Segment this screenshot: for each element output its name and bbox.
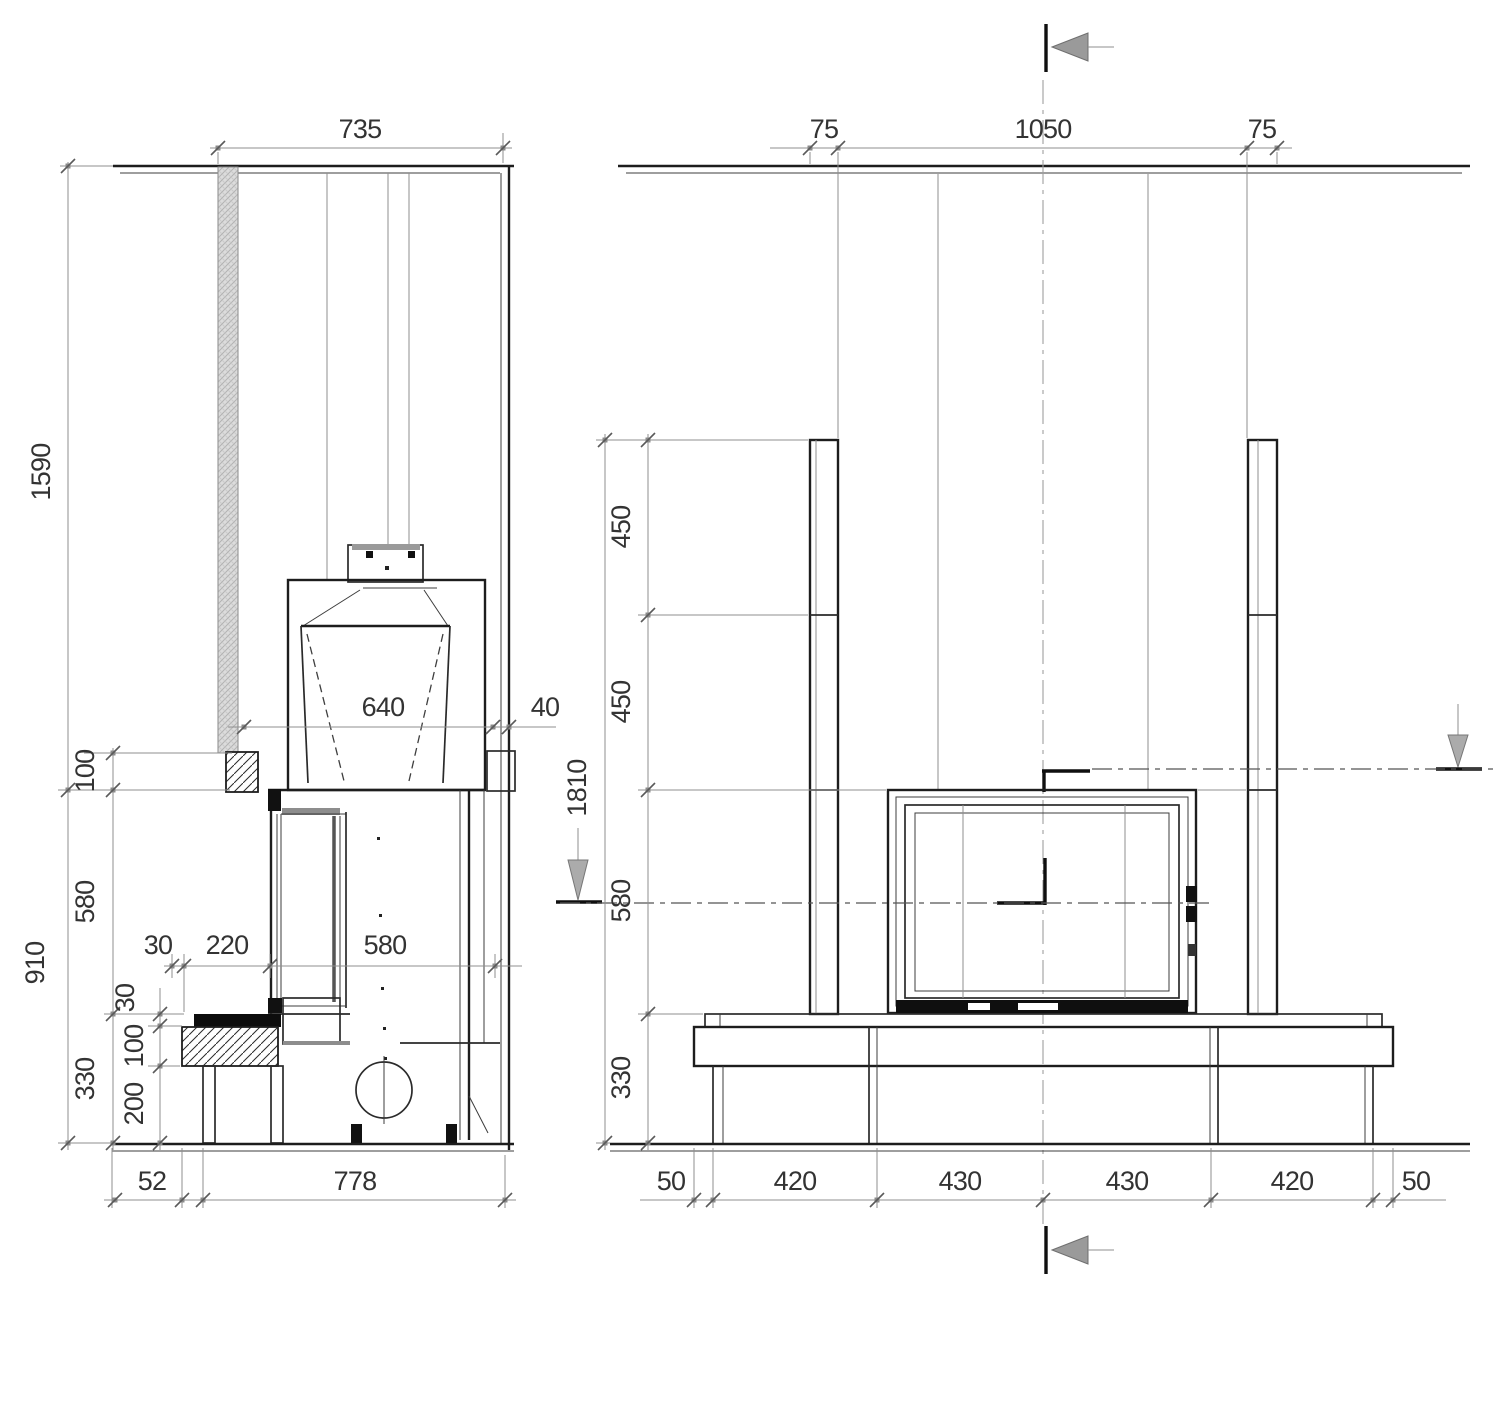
dim-bench-segment-2: 430: [939, 1166, 982, 1196]
dim-bench-depth: 220: [206, 930, 249, 960]
ceiling-line: [60, 166, 514, 173]
dim-bench-block-height: 100: [119, 1025, 149, 1068]
section-arrow-bottom: [1046, 1226, 1114, 1274]
wall-sleeve-block: [226, 752, 258, 792]
bench-section: [182, 1014, 283, 1143]
ash-door: [283, 998, 340, 1044]
dim-bench-segment-3: 430: [1106, 1166, 1149, 1196]
dim-bench-segment-1: 420: [774, 1166, 817, 1196]
dim-base-height: 330: [606, 1057, 636, 1100]
dim-mid-height: 580: [70, 881, 100, 924]
dim-front-gap: 30: [144, 930, 172, 960]
dim-dome-width: 640: [362, 692, 405, 722]
smoke-dome-taper-left: [307, 634, 344, 781]
datum-marker-left: [556, 828, 602, 902]
dim-total-depth: 778: [334, 1166, 377, 1196]
bench-leg-rear: [271, 1066, 283, 1143]
left-column: [810, 440, 838, 1014]
dim-column-upper: 450: [606, 506, 636, 549]
flue-pipe-lines: [327, 173, 409, 580]
dim-total-height: 1810: [562, 760, 592, 817]
facing-wall: [501, 166, 509, 1150]
section-arrow-top: [1046, 24, 1114, 72]
flue-collar: [348, 544, 423, 582]
dim-floor-left: 50: [657, 1166, 685, 1196]
chimney-wall-section: [218, 167, 238, 753]
smoke-chamber-housing: [288, 580, 485, 790]
dim-leg-height: 200: [119, 1083, 149, 1126]
dim-column-lower: 450: [606, 681, 636, 724]
floor-line-left-view: [112, 1144, 514, 1151]
dim-margin-left: 75: [810, 114, 838, 144]
front-view-dimension-lines: [596, 141, 1446, 1208]
dim-bench-segment-4: 420: [1271, 1166, 1314, 1196]
floor-line-front-view: [610, 1144, 1470, 1151]
dim-firebox-height: 580: [606, 880, 636, 923]
dim-wall-height: 1590: [26, 444, 56, 501]
front-elevation-view: 75 1050 75 450 450 1810 580 330 50 420 4…: [556, 24, 1495, 1274]
dim-opening-width: 1050: [1015, 114, 1072, 144]
dim-connector-height: 100: [70, 750, 100, 793]
right-column: [1248, 440, 1277, 1014]
technical-drawing-page: 735 640 40 30 220 580 52 778 1590 910 10…: [0, 0, 1500, 1427]
dim-rear-gap: 40: [531, 692, 559, 722]
dim-margin-right: 75: [1248, 114, 1276, 144]
hinge-upper: [1186, 886, 1197, 902]
bench-leg-front: [203, 1066, 215, 1143]
dim-floor-right: 50: [1402, 1166, 1430, 1196]
ceiling-line-front: [618, 166, 1470, 173]
dim-base-total-height: 330: [70, 1058, 100, 1101]
side-section-view: 735 640 40 30 220 580 52 778 1590 910 10…: [20, 114, 559, 1208]
dim-firebox-depth: 580: [364, 930, 407, 960]
datum-marker-right: [1436, 704, 1482, 769]
bench-block: [182, 1027, 278, 1066]
hinge-lower: [1186, 906, 1197, 922]
dim-top-width: 735: [339, 114, 382, 144]
smoke-dome-taper-right: [409, 634, 443, 781]
firebox-foot-rear: [446, 1124, 457, 1143]
dim-floor-offset: 52: [138, 1166, 166, 1196]
dim-lower-total-height: 910: [20, 942, 50, 985]
bench-top-slab: [194, 1014, 281, 1027]
firebox-foot-front: [351, 1124, 362, 1143]
fireplace-dimension-drawing: 735 640 40 30 220 580 52 778 1590 910 10…: [0, 0, 1500, 1427]
dim-bench-top-thickness: 30: [110, 984, 140, 1012]
